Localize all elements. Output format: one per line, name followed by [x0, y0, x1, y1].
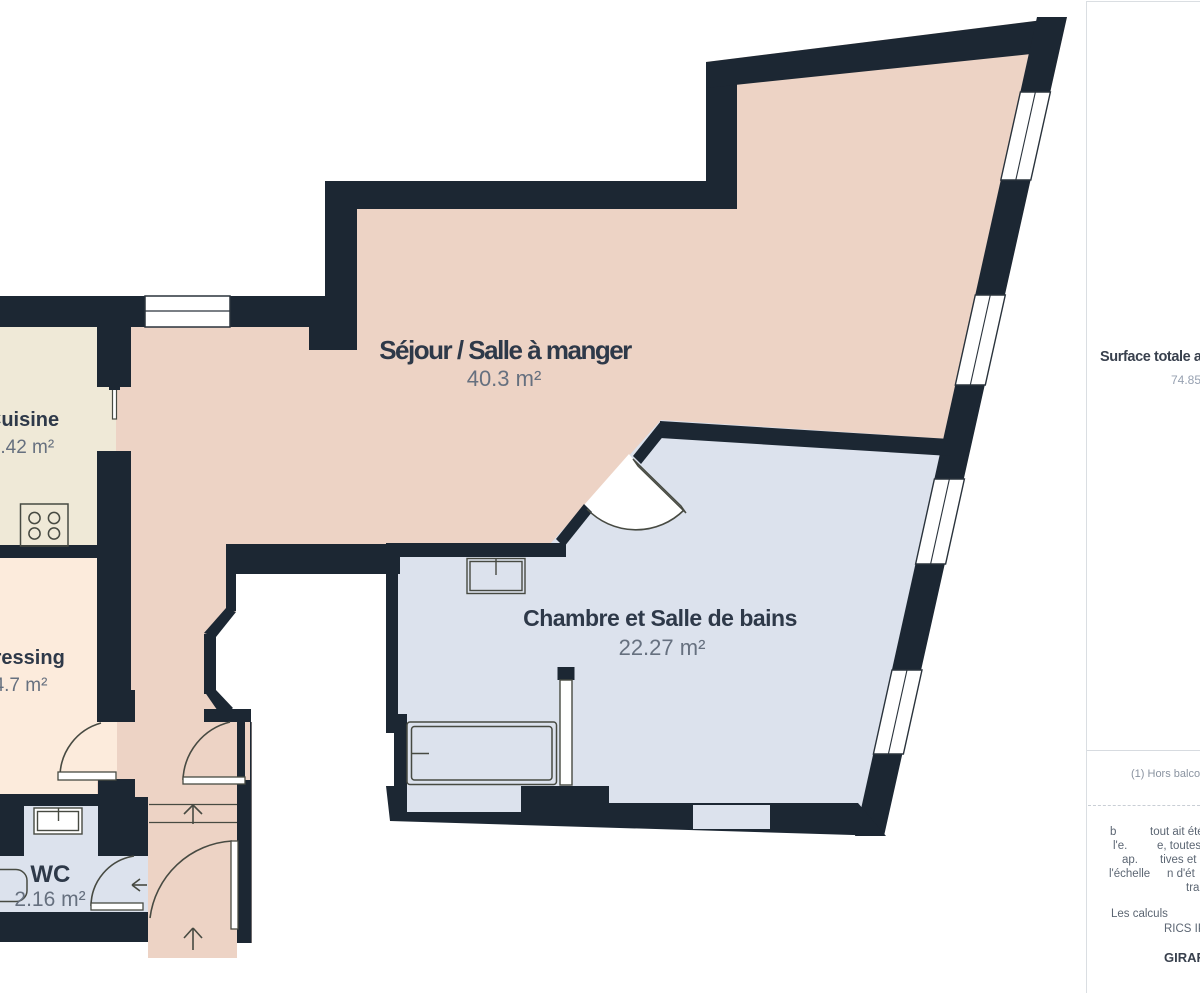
svg-text:Séjour / Salle à manger: Séjour / Salle à manger: [379, 335, 632, 365]
svg-text:Chambre et Salle de bains: Chambre et Salle de bains: [523, 605, 797, 631]
svg-text:Cuisine: Cuisine: [0, 409, 59, 431]
svg-text:6.42 m²: 6.42 m²: [0, 437, 54, 458]
svg-text:Dressing: Dressing: [0, 647, 65, 669]
svg-text:22.27 m²: 22.27 m²: [619, 635, 706, 660]
svg-text:WC: WC: [30, 861, 70, 888]
svg-text:4.7 m²: 4.7 m²: [0, 675, 47, 696]
svg-text:2.16 m²: 2.16 m²: [14, 888, 85, 911]
svg-text:40.3 m²: 40.3 m²: [467, 366, 542, 391]
